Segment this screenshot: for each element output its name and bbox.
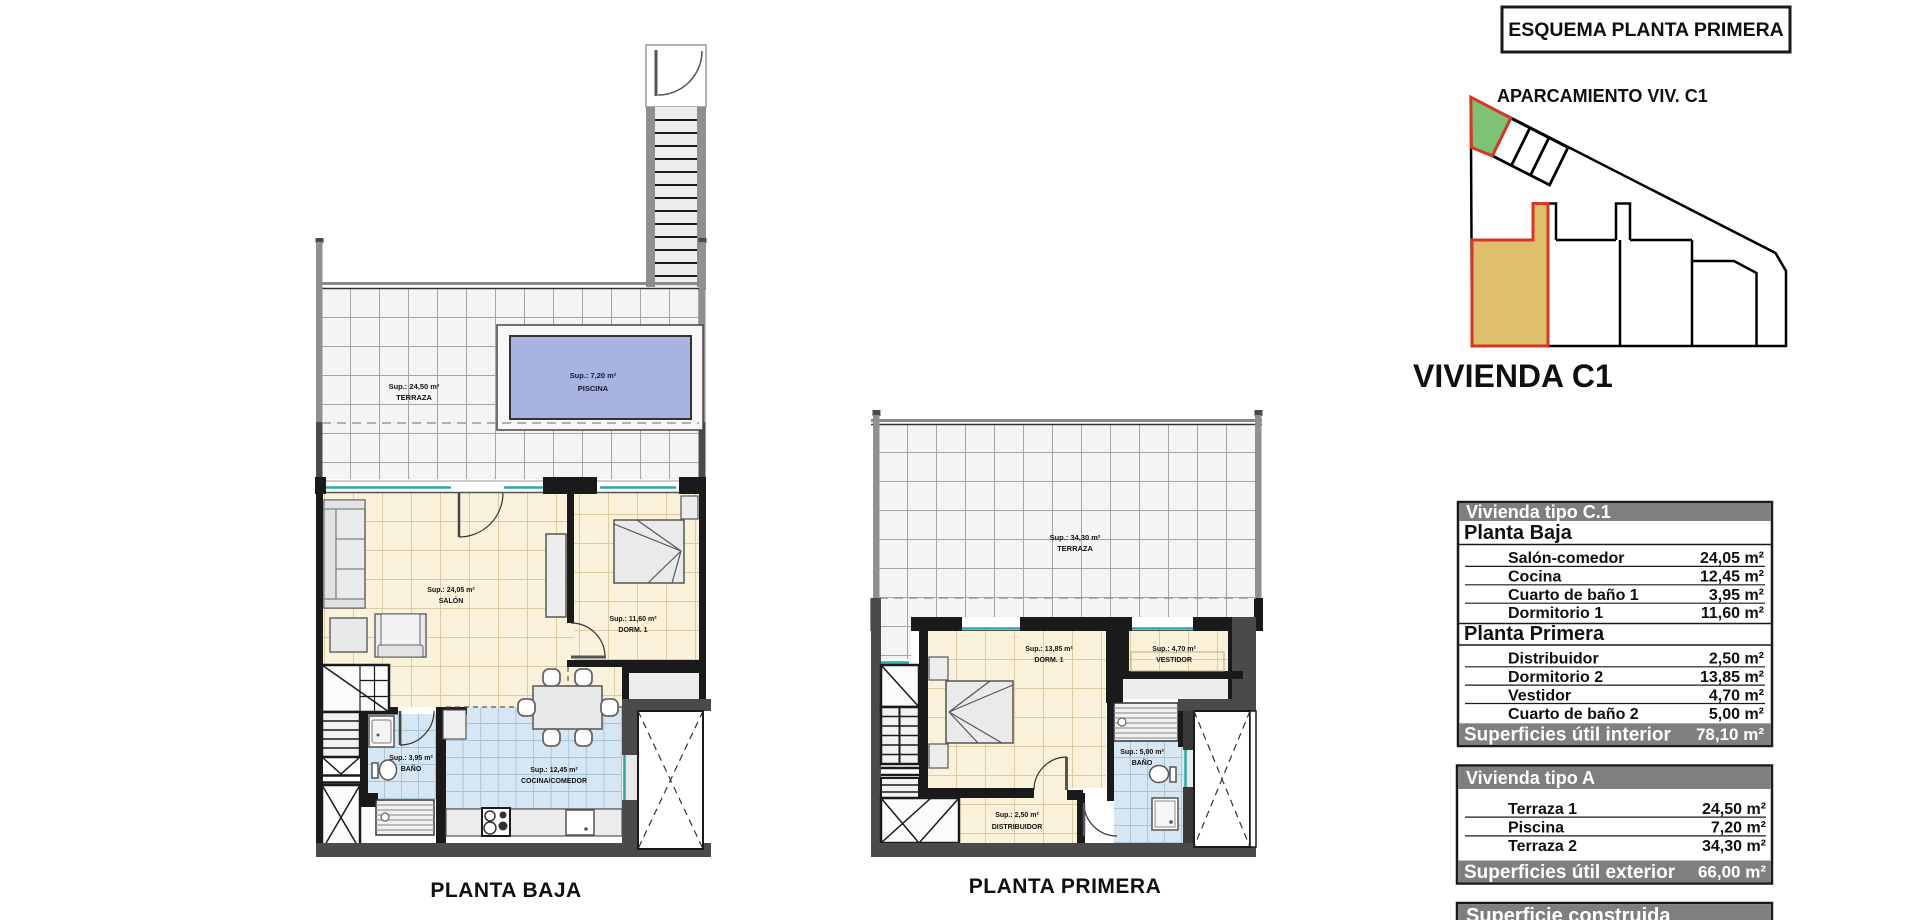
svg-text:Vivienda tipo A: Vivienda tipo A	[1466, 768, 1595, 788]
svg-text:Sup.: 34,30 m²: Sup.: 34,30 m²	[1050, 533, 1101, 542]
svg-text:Cuarto de baño 2: Cuarto de baño 2	[1508, 706, 1639, 723]
svg-text:VIVIENDA C1: VIVIENDA C1	[1413, 358, 1613, 394]
svg-text:COCINA/COMEDOR: COCINA/COMEDOR	[521, 778, 587, 785]
svg-text:3,95 m²: 3,95 m²	[1709, 587, 1764, 604]
svg-text:Salón-comedor: Salón-comedor	[1508, 550, 1624, 567]
svg-text:Sup.: 4,70 m²: Sup.: 4,70 m²	[1152, 646, 1196, 653]
svg-text:4,70 m²: 4,70 m²	[1709, 688, 1764, 705]
svg-text:Sup.: 11,60 m²: Sup.: 11,60 m²	[609, 616, 657, 623]
svg-text:Sup.: 7,20 m²: Sup.: 7,20 m²	[570, 371, 617, 380]
svg-text:Piscina: Piscina	[1508, 820, 1564, 837]
svg-text:Vivienda tipo C.1: Vivienda tipo C.1	[1466, 502, 1611, 522]
svg-text:PLANTA BAJA: PLANTA BAJA	[430, 879, 581, 902]
svg-text:ESQUEMA PLANTA PRIMERA: ESQUEMA PLANTA PRIMERA	[1508, 19, 1784, 41]
svg-text:PISCINA: PISCINA	[578, 384, 609, 393]
svg-text:Superficies útil exterior: Superficies útil exterior	[1464, 862, 1676, 883]
svg-text:Planta Baja: Planta Baja	[1464, 522, 1573, 544]
svg-text:APARCAMIENTO VIV. C1: APARCAMIENTO VIV. C1	[1497, 86, 1708, 106]
svg-text:Vestidor: Vestidor	[1508, 688, 1571, 705]
svg-text:24,05 m²: 24,05 m²	[1700, 550, 1764, 567]
svg-text:Sup.: 13,85 m²: Sup.: 13,85 m²	[1025, 646, 1073, 653]
svg-text:Sup.: 2,50 m²: Sup.: 2,50 m²	[995, 812, 1039, 819]
svg-text:Planta Primera: Planta Primera	[1464, 623, 1605, 645]
svg-text:Terraza 1: Terraza 1	[1508, 801, 1577, 818]
svg-text:2,50 m²: 2,50 m²	[1709, 651, 1764, 668]
svg-text:VESTIDOR: VESTIDOR	[1156, 657, 1192, 664]
svg-text:Superficies útil interior: Superficies útil interior	[1464, 725, 1672, 746]
svg-text:13,85 m²: 13,85 m²	[1700, 669, 1764, 686]
svg-text:DORM. 1: DORM. 1	[1034, 657, 1063, 664]
svg-text:Sup.: 12,45 m²: Sup.: 12,45 m²	[530, 767, 578, 774]
svg-text:Cocina: Cocina	[1508, 569, 1561, 586]
svg-text:DISTRIBUIDOR: DISTRIBUIDOR	[992, 824, 1043, 831]
svg-text:24,50 m²: 24,50 m²	[1702, 801, 1766, 818]
svg-text:7,20 m²: 7,20 m²	[1711, 820, 1766, 837]
svg-text:Sup.: 24,50 m²: Sup.: 24,50 m²	[389, 382, 440, 391]
svg-text:Cuarto de baño 1: Cuarto de baño 1	[1508, 587, 1639, 604]
svg-text:Dormitorio 1: Dormitorio 1	[1508, 605, 1603, 622]
svg-text:11,60 m²: 11,60 m²	[1701, 605, 1764, 622]
svg-text:Superficie construida: Superficie construida	[1466, 905, 1671, 920]
svg-text:78,10 m²: 78,10 m²	[1696, 725, 1764, 744]
svg-text:Sup.: 24,05 m²: Sup.: 24,05 m²	[427, 587, 475, 594]
svg-text:5,00 m²: 5,00 m²	[1709, 706, 1764, 723]
svg-text:Terraza 2: Terraza 2	[1508, 838, 1577, 855]
svg-text:12,45 m²: 12,45 m²	[1700, 569, 1764, 586]
svg-text:PLANTA PRIMERA: PLANTA PRIMERA	[969, 875, 1162, 898]
svg-text:Sup.: 3,95 m²: Sup.: 3,95 m²	[389, 755, 433, 762]
svg-text:BAÑO: BAÑO	[1132, 758, 1153, 767]
svg-text:TERRAZA: TERRAZA	[1057, 544, 1093, 553]
svg-text:TERRAZA: TERRAZA	[396, 393, 432, 402]
svg-text:DORM. 1: DORM. 1	[618, 627, 647, 634]
svg-text:SALÓN: SALÓN	[439, 596, 464, 605]
svg-text:66,00 m²: 66,00 m²	[1698, 863, 1766, 882]
svg-text:34,30 m²: 34,30 m²	[1702, 838, 1766, 855]
svg-text:Distribuidor: Distribuidor	[1508, 651, 1599, 668]
svg-text:BAÑO: BAÑO	[401, 764, 422, 773]
svg-text:Sup.: 5,00 m²: Sup.: 5,00 m²	[1120, 749, 1164, 756]
svg-text:Dormitorio 2: Dormitorio 2	[1508, 669, 1603, 686]
